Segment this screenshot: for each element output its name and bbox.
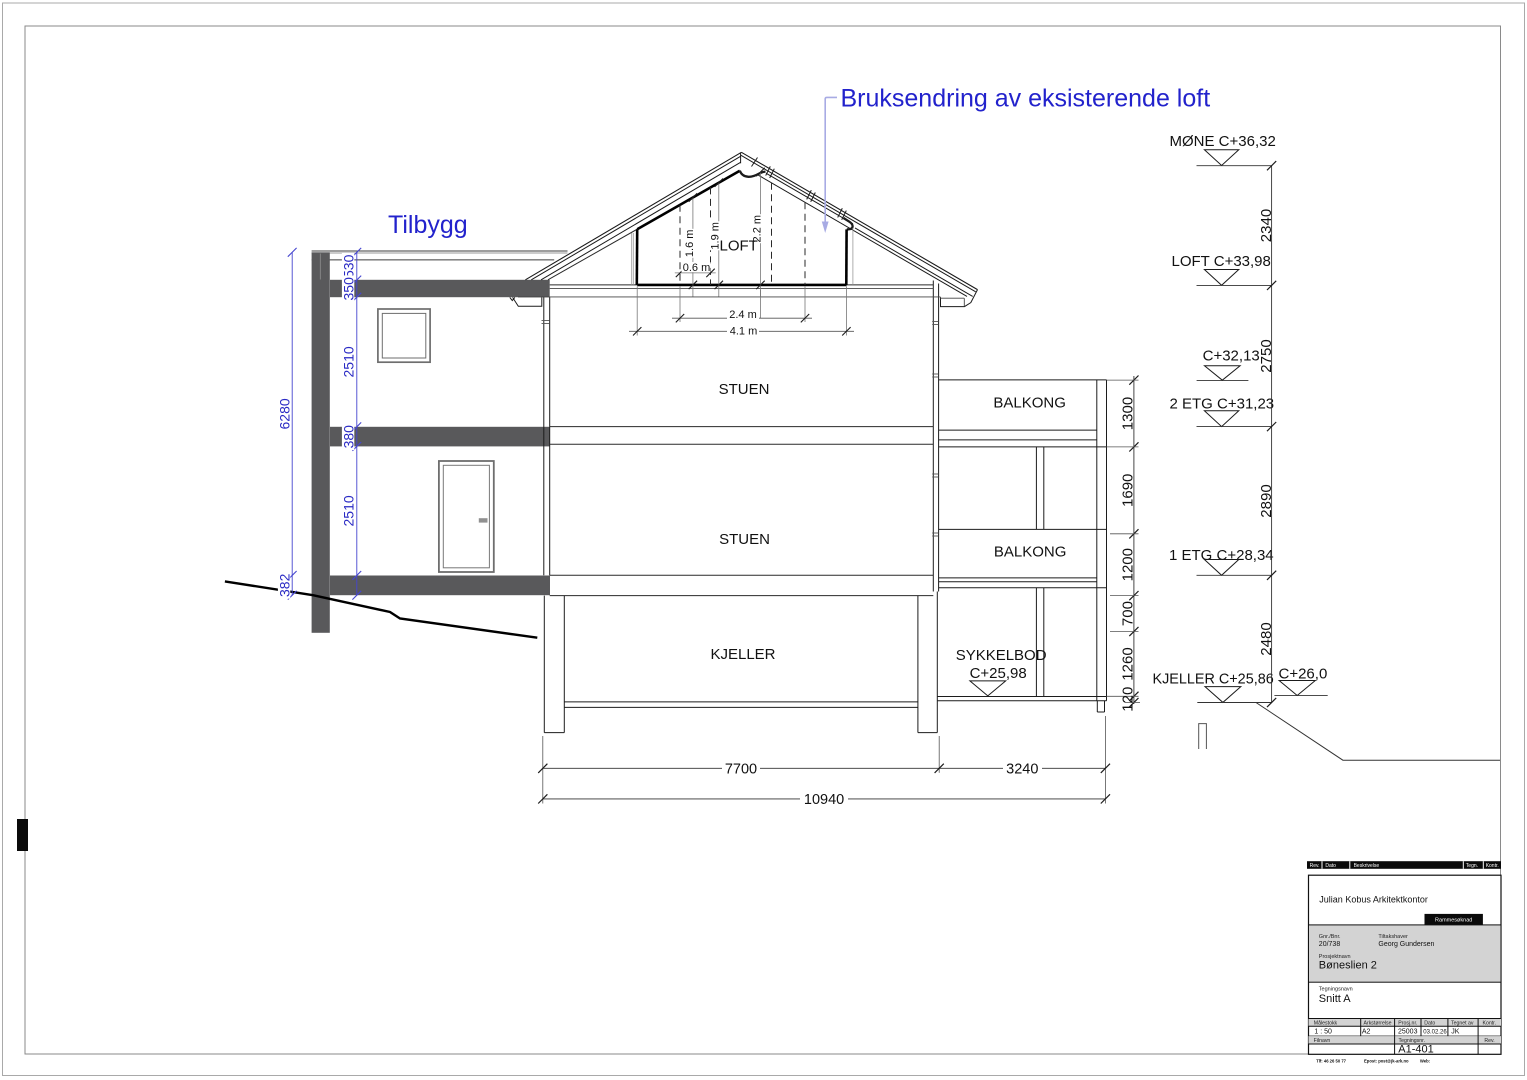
svg-text:03.02.26: 03.02.26 bbox=[1423, 1029, 1447, 1035]
svg-text:1300: 1300 bbox=[1120, 397, 1137, 430]
svg-text:Dato: Dato bbox=[1424, 1020, 1435, 1026]
svg-text:2340: 2340 bbox=[1258, 209, 1275, 242]
svg-text:Bøneslien 2: Bøneslien 2 bbox=[1319, 959, 1377, 971]
svg-text:120: 120 bbox=[1120, 687, 1137, 712]
svg-text:KJELLER: KJELLER bbox=[710, 646, 775, 663]
svg-text:MØNE C+36,32: MØNE C+36,32 bbox=[1170, 133, 1276, 150]
svg-text:C+26,0: C+26,0 bbox=[1279, 666, 1328, 683]
svg-text:Målestokk: Målestokk bbox=[1314, 1019, 1338, 1026]
svg-text:2510: 2510 bbox=[341, 346, 357, 377]
svg-text:LOFT: LOFT bbox=[720, 237, 758, 254]
svg-text:2480: 2480 bbox=[1258, 622, 1275, 655]
svg-text:1690: 1690 bbox=[1120, 474, 1137, 507]
svg-text:BALKONG: BALKONG bbox=[993, 395, 1066, 412]
svg-text:2750: 2750 bbox=[1258, 339, 1275, 372]
svg-text:3240: 3240 bbox=[1006, 761, 1038, 777]
svg-text:A1-401: A1-401 bbox=[1398, 1044, 1433, 1056]
svg-text:Georg Gundersen: Georg Gundersen bbox=[1378, 941, 1434, 948]
svg-text:LOFT C+33,98: LOFT C+33,98 bbox=[1172, 253, 1271, 270]
svg-text:BALKONG: BALKONG bbox=[994, 544, 1067, 561]
svg-text:700: 700 bbox=[1120, 601, 1137, 626]
svg-text:0.6 m: 0.6 m bbox=[683, 262, 711, 274]
svg-text:382: 382 bbox=[277, 573, 293, 597]
svg-text:2.4 m: 2.4 m bbox=[729, 309, 757, 321]
svg-text:SYKKELBOD: SYKKELBOD bbox=[956, 647, 1047, 664]
svg-text:6280: 6280 bbox=[277, 398, 293, 429]
svg-text:10940: 10940 bbox=[804, 792, 844, 808]
svg-text:20/738: 20/738 bbox=[1319, 941, 1341, 948]
svg-text:STUEN: STUEN bbox=[719, 381, 770, 398]
svg-text:C+32,13: C+32,13 bbox=[1203, 348, 1260, 365]
svg-text:Tiltakshaver: Tiltakshaver bbox=[1378, 934, 1408, 940]
svg-text:2 ETG C+31,23: 2 ETG C+31,23 bbox=[1170, 395, 1275, 412]
svg-text:Tegn.: Tegn. bbox=[1466, 863, 1478, 869]
svg-text:Rev.: Rev. bbox=[1484, 1038, 1494, 1044]
svg-text:Tegningsnavn: Tegningsnavn bbox=[1319, 986, 1353, 992]
svg-text:380: 380 bbox=[341, 425, 357, 449]
svg-text:1 : 50: 1 : 50 bbox=[1314, 1029, 1332, 1036]
svg-text:1.6 m: 1.6 m bbox=[684, 230, 696, 258]
svg-text:Web:: Web: bbox=[1420, 1058, 1430, 1063]
svg-text:Kontr.: Kontr. bbox=[1483, 1020, 1497, 1026]
svg-text:2510: 2510 bbox=[341, 495, 357, 526]
svg-text:1200: 1200 bbox=[1120, 548, 1137, 581]
svg-text:Julian Kobus Arkitektkontor: Julian Kobus Arkitektkontor bbox=[1319, 895, 1428, 905]
svg-text:7700: 7700 bbox=[725, 761, 757, 777]
svg-text:Rev.: Rev. bbox=[1310, 863, 1320, 869]
svg-text:4.1 m: 4.1 m bbox=[730, 326, 758, 338]
svg-text:Filnavn: Filnavn bbox=[1314, 1038, 1331, 1044]
svg-text:Epost: post@jk-ark.no: Epost: post@jk-ark.no bbox=[1364, 1058, 1409, 1063]
svg-text:530: 530 bbox=[341, 254, 357, 278]
svg-text:Beskrivelse: Beskrivelse bbox=[1354, 863, 1380, 869]
svg-text:2890: 2890 bbox=[1258, 484, 1275, 517]
svg-text:JK: JK bbox=[1451, 1029, 1460, 1036]
svg-text:Dato: Dato bbox=[1325, 863, 1336, 869]
svg-text:Bruksendring av eksisterende l: Bruksendring av eksisterende loft bbox=[841, 85, 1211, 113]
svg-text:350: 350 bbox=[341, 277, 357, 301]
svg-text:1260: 1260 bbox=[1120, 647, 1137, 680]
svg-text:C+25,98: C+25,98 bbox=[970, 665, 1027, 682]
svg-text:Tegnet av: Tegnet av bbox=[1451, 1020, 1474, 1026]
svg-text:Rammesøknad: Rammesøknad bbox=[1435, 918, 1472, 924]
svg-text:Kontr.: Kontr. bbox=[1486, 863, 1499, 869]
svg-text:KJELLER C+25,86: KJELLER C+25,86 bbox=[1153, 672, 1274, 688]
svg-text:Snitt A: Snitt A bbox=[1319, 993, 1351, 1005]
svg-text:Tlf: 46 26 50 77: Tlf: 46 26 50 77 bbox=[1316, 1058, 1346, 1063]
svg-text:Gnr./Bnr.: Gnr./Bnr. bbox=[1319, 934, 1341, 940]
svg-text:Tilbygg: Tilbygg bbox=[388, 211, 468, 239]
svg-text:A2: A2 bbox=[1362, 1029, 1371, 1036]
svg-text:Prosj.nr.: Prosj.nr. bbox=[1398, 1020, 1417, 1026]
svg-text:25003: 25003 bbox=[1398, 1029, 1418, 1036]
svg-text:Arkstørrelse: Arkstørrelse bbox=[1364, 1020, 1392, 1026]
svg-text:STUEN: STUEN bbox=[719, 531, 770, 548]
